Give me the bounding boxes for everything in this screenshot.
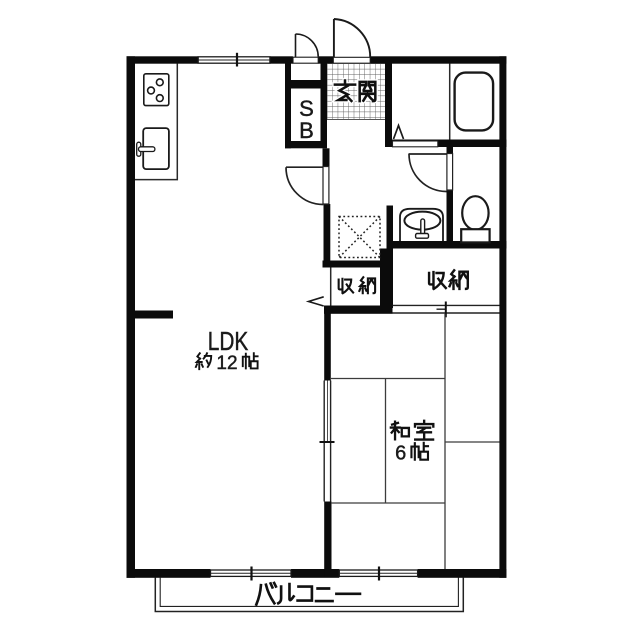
svg-text:B: B: [299, 118, 314, 143]
svg-text:LDK: LDK: [208, 326, 249, 356]
svg-text:6: 6: [395, 443, 406, 465]
svg-text:12: 12: [216, 353, 237, 374]
